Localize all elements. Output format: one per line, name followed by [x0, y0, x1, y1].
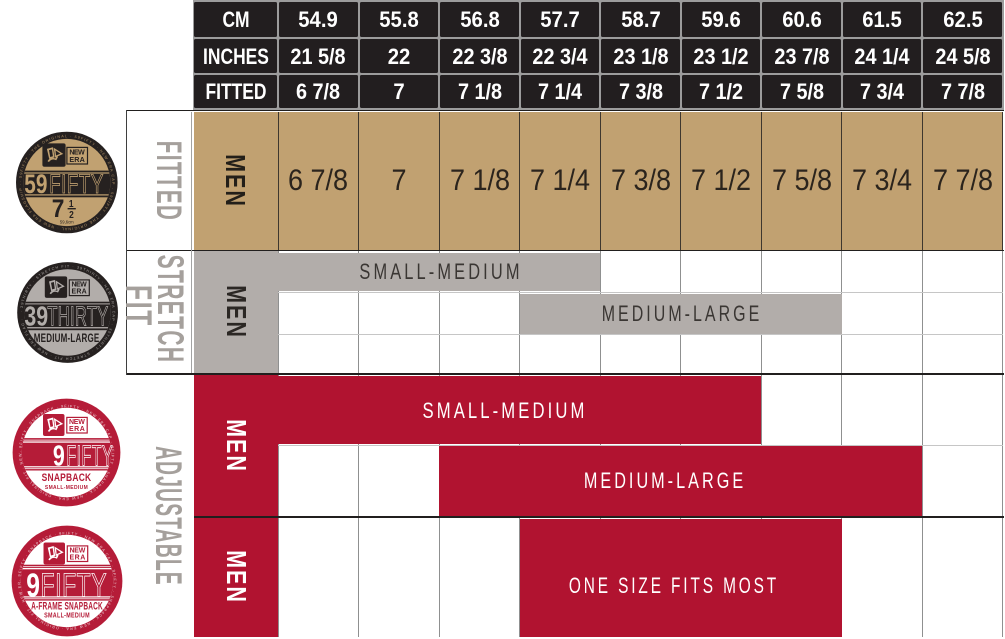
- svg-text:FIFTY: FIFTY: [66, 440, 113, 472]
- svg-text:ERA: ERA: [69, 155, 84, 164]
- svg-text:SMALL-MEDIUM: SMALL-MEDIUM: [45, 485, 88, 491]
- svg-text:NEW: NEW: [70, 548, 86, 555]
- svg-text:FIFTY: FIFTY: [49, 168, 104, 198]
- svg-text:MEDIUM-LARGE: MEDIUM-LARGE: [34, 333, 100, 346]
- svg-text:ERA: ERA: [69, 426, 85, 433]
- svg-text:9: 9: [53, 441, 65, 473]
- svg-text:THIRTY: THIRTY: [47, 301, 108, 331]
- svg-text:SMALL-MEDIUM: SMALL-MEDIUM: [44, 612, 90, 620]
- svg-text:NEW: NEW: [72, 282, 88, 289]
- svg-text:SNAPBACK: SNAPBACK: [42, 472, 92, 484]
- svg-text:ERA: ERA: [72, 289, 87, 296]
- svg-text:ERA: ERA: [70, 555, 86, 562]
- svg-text:59,6cm: 59,6cm: [60, 219, 74, 224]
- svg-text:A-FRAME SNAPBACK: A-FRAME SNAPBACK: [31, 600, 103, 612]
- svg-text:NEW: NEW: [69, 419, 85, 426]
- svg-text:59: 59: [24, 169, 47, 199]
- svg-text:39: 39: [24, 302, 48, 332]
